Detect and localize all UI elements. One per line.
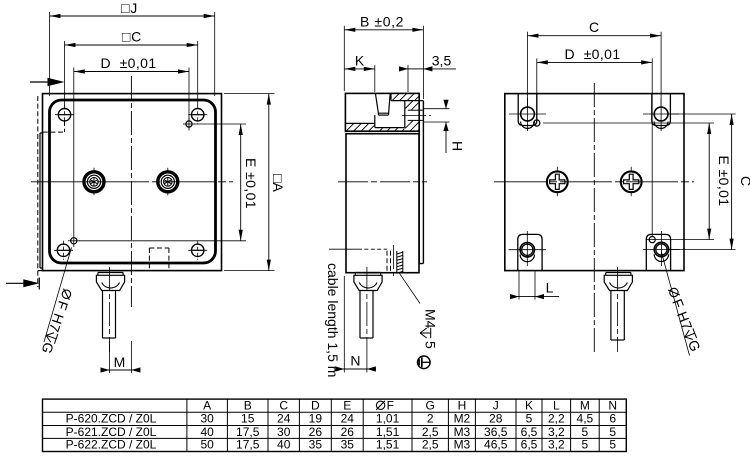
svg-text:P-621.ZCD / Z0L: P-621.ZCD / Z0L <box>66 425 157 439</box>
svg-text:5: 5 <box>423 341 439 349</box>
svg-text:2,2: 2,2 <box>548 412 565 426</box>
svg-text:3,2: 3,2 <box>548 425 565 439</box>
svg-text:J: J <box>493 399 499 413</box>
svg-text:5: 5 <box>526 412 533 426</box>
svg-text:1,51: 1,51 <box>376 438 400 452</box>
svg-text:□C: □C <box>122 29 142 45</box>
svg-text:6,5: 6,5 <box>521 438 538 452</box>
svg-text:1,01: 1,01 <box>376 412 400 426</box>
svg-text:K: K <box>355 52 365 68</box>
svg-text:6: 6 <box>609 412 616 426</box>
svg-text:28: 28 <box>489 412 503 426</box>
svg-text:17,5: 17,5 <box>236 425 260 439</box>
svg-text:M3: M3 <box>454 425 471 439</box>
svg-text:46,5: 46,5 <box>484 438 508 452</box>
svg-text:5: 5 <box>582 425 589 439</box>
svg-text:2,5: 2,5 <box>422 438 439 452</box>
svg-text:E ±0,01: E ±0,01 <box>716 156 732 207</box>
svg-text:C: C <box>279 399 288 413</box>
svg-text:19: 19 <box>309 412 323 426</box>
svg-text:K: K <box>525 399 533 413</box>
svg-text:L: L <box>546 279 554 295</box>
svg-text:H: H <box>458 399 467 413</box>
svg-text:24: 24 <box>341 412 355 426</box>
svg-text:N: N <box>350 353 360 369</box>
svg-text:L: L <box>553 399 560 413</box>
svg-text:24: 24 <box>277 412 291 426</box>
svg-text:M2: M2 <box>454 412 471 426</box>
svg-text:5: 5 <box>609 425 616 439</box>
svg-text:35: 35 <box>309 438 323 452</box>
svg-text:C: C <box>589 19 599 35</box>
svg-text:26: 26 <box>309 425 323 439</box>
svg-text:5: 5 <box>582 438 589 452</box>
svg-text:A: A <box>203 399 211 413</box>
svg-text:F: F <box>387 399 394 413</box>
svg-text:H: H <box>450 141 466 151</box>
svg-text:cable length 1,5 m: cable length 1,5 m <box>325 263 341 377</box>
svg-text:N: N <box>608 399 617 413</box>
svg-text:30: 30 <box>200 412 214 426</box>
svg-text:G: G <box>685 338 704 354</box>
svg-text:3,5: 3,5 <box>432 52 452 68</box>
svg-text:36,5: 36,5 <box>484 425 508 439</box>
svg-text:F H7: F H7 <box>46 299 72 335</box>
svg-text:E: E <box>343 399 351 413</box>
svg-text:50: 50 <box>200 438 214 452</box>
svg-text:P-622.ZCD / Z0L: P-622.ZCD / Z0L <box>66 438 157 452</box>
svg-text:3,2: 3,2 <box>548 438 565 452</box>
svg-text:D: D <box>311 399 320 413</box>
svg-text:M: M <box>114 354 126 370</box>
svg-text:M4: M4 <box>423 309 439 329</box>
svg-text:G: G <box>426 399 435 413</box>
svg-text:D ±0,01: D ±0,01 <box>100 55 156 71</box>
svg-text:F H7: F H7 <box>669 297 696 333</box>
svg-text:M: M <box>580 399 590 413</box>
svg-text:D ±0,01: D ±0,01 <box>564 46 620 62</box>
svg-text:15: 15 <box>241 412 255 426</box>
svg-text:5: 5 <box>609 438 616 452</box>
svg-text:C: C <box>738 176 750 186</box>
svg-text:30: 30 <box>277 425 291 439</box>
svg-text:E ±0,01: E ±0,01 <box>243 158 259 209</box>
svg-text:40: 40 <box>277 438 291 452</box>
svg-text:1,51: 1,51 <box>376 425 400 439</box>
svg-text:2: 2 <box>427 412 434 426</box>
svg-text:6,5: 6,5 <box>521 425 538 439</box>
svg-text:M3: M3 <box>454 438 471 452</box>
svg-text:B: B <box>244 399 252 413</box>
svg-text:17,5: 17,5 <box>236 438 260 452</box>
svg-text:□J: □J <box>121 0 138 16</box>
svg-text:35: 35 <box>341 438 355 452</box>
svg-text:B ±0,2: B ±0,2 <box>360 14 404 30</box>
svg-text:26: 26 <box>341 425 355 439</box>
svg-text:□A: □A <box>270 174 286 192</box>
svg-text:4,5: 4,5 <box>577 412 594 426</box>
svg-text:P-620.ZCD / Z0L: P-620.ZCD / Z0L <box>66 412 157 426</box>
svg-text:2,5: 2,5 <box>422 425 439 439</box>
svg-text:40: 40 <box>200 425 214 439</box>
